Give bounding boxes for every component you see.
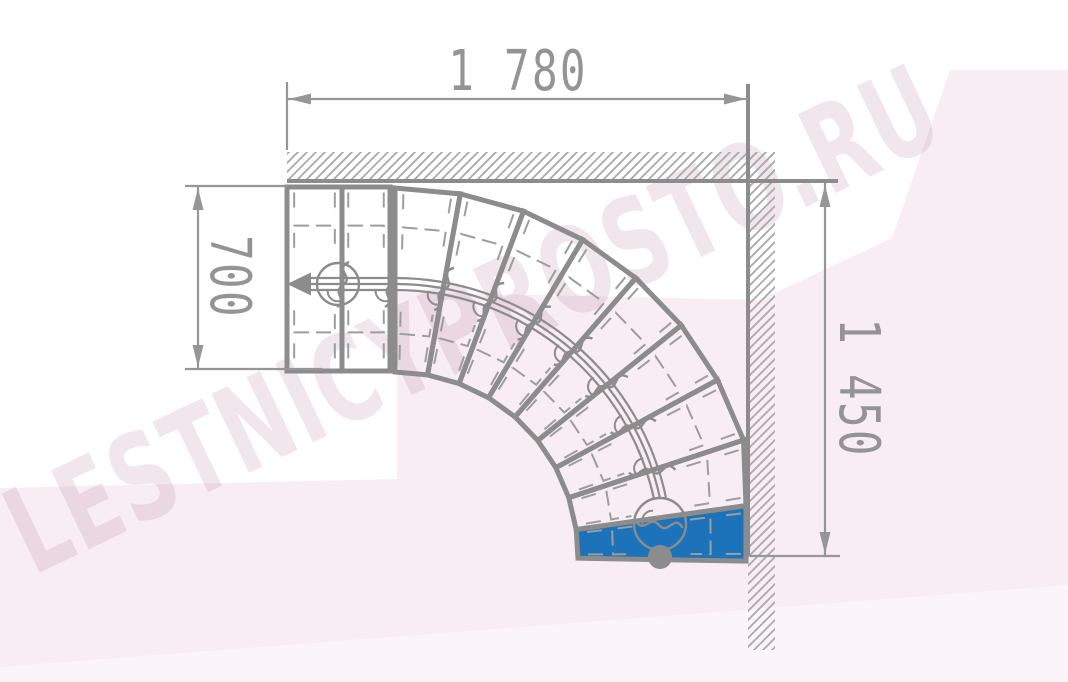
- right-wall-hatch: [748, 152, 775, 650]
- hidden-edge-line: [638, 356, 680, 403]
- hidden-edge-line: [456, 234, 502, 266]
- hidden-edge-line: [294, 226, 335, 248]
- hidden-edge-line: [400, 312, 433, 337]
- walls: [287, 84, 838, 650]
- top-wall-hatch: [287, 152, 775, 179]
- walkline-start-dot: [648, 545, 672, 569]
- hidden-edge-line: [448, 199, 451, 221]
- hidden-edge-line: [439, 317, 474, 346]
- dimension-arrow-icon: [820, 185, 831, 207]
- tread: [515, 278, 681, 440]
- hidden-edge-line: [714, 434, 735, 441]
- hidden-edge-line: [294, 310, 335, 332]
- hidden-edge-line: [348, 310, 384, 332]
- hidden-edge-line: [506, 214, 513, 235]
- dimension-arrow-icon: [724, 94, 746, 105]
- hidden-edge-line: [718, 450, 739, 456]
- hidden-edge-line: [720, 498, 740, 501]
- dimension-arrow-icon: [289, 94, 311, 105]
- hidden-edge-line: [509, 251, 556, 289]
- hidden-edge-line: [521, 220, 529, 240]
- hidden-edge-line: [477, 329, 514, 362]
- dimension-arrow-icon: [820, 532, 831, 554]
- dimension-label-top: 1 780: [448, 44, 588, 100]
- hidden-edge-line: [592, 444, 624, 481]
- hidden-edge-line: [557, 277, 604, 319]
- dimension-arrow-icon: [193, 345, 204, 367]
- hidden-edge-line: [601, 313, 646, 358]
- dimension-label-right: 1 450: [830, 318, 886, 458]
- hidden-edge-line: [606, 484, 631, 519]
- hidden-edge-line: [402, 227, 446, 253]
- dimension-label-left: 700: [201, 235, 257, 319]
- hidden-edge-line: [667, 405, 704, 452]
- hidden-edge-line: [399, 345, 400, 367]
- staircase-plan-screenshot: LESTNICYPROSTO.RU 1 780 700 1 450: [0, 0, 1068, 682]
- hidden-edge-line: [348, 226, 384, 248]
- hidden-edge-line: [403, 194, 404, 216]
- tread: [459, 211, 583, 397]
- dimension-arrow-icon: [193, 188, 204, 210]
- direction-arrow-icon: [287, 273, 311, 296]
- hidden-edge-line: [463, 202, 467, 224]
- tread: [395, 188, 460, 375]
- hidden-edge-line: [686, 460, 709, 507]
